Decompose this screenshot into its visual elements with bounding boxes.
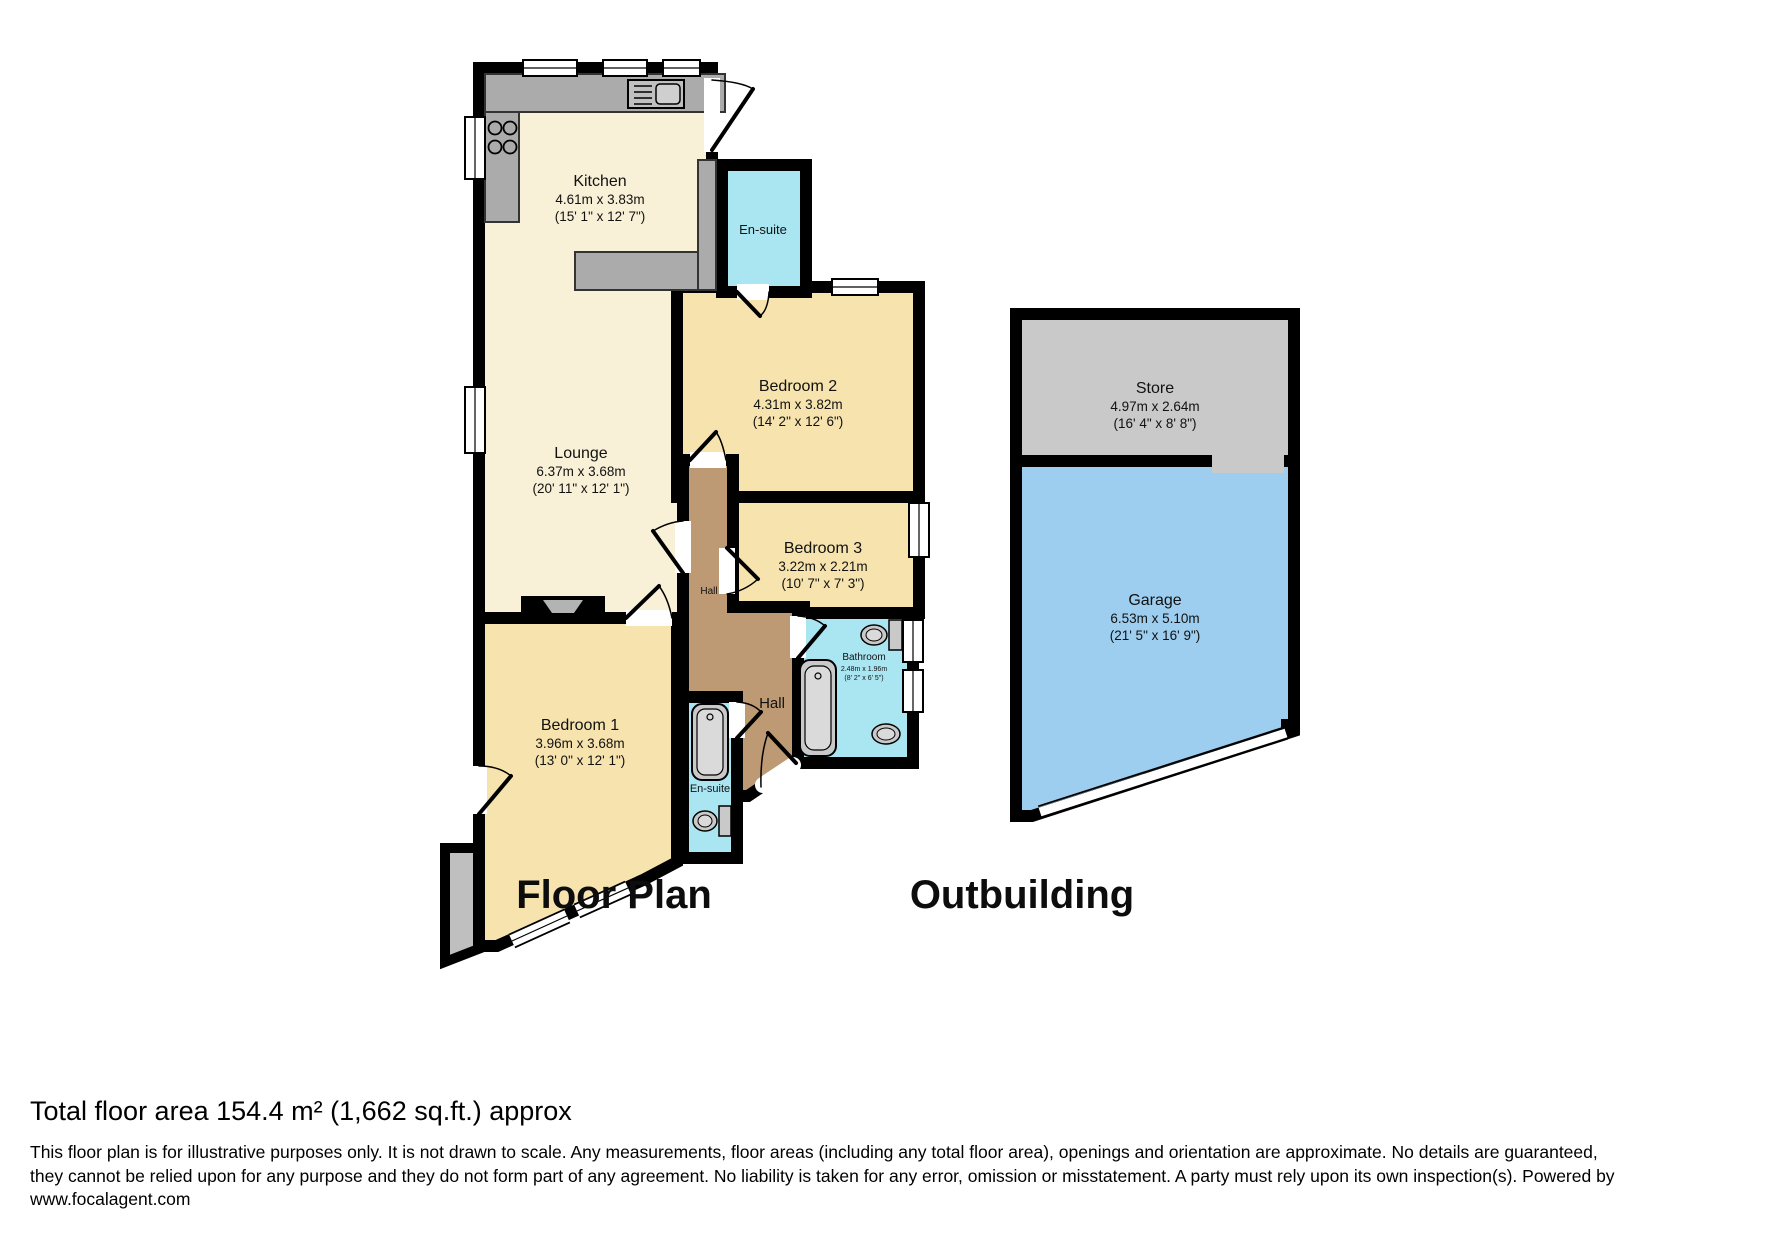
bathroom-metric: 2.48m x 1.96m xyxy=(841,666,887,673)
disclaimer: This floor plan is for illustrative purp… xyxy=(30,1141,1760,1212)
bedroom2-metric: 4.31m x 3.82m xyxy=(753,397,842,412)
ensuite-top-label: En-suite xyxy=(739,222,787,237)
kitchen-window-left xyxy=(465,117,485,179)
disclaimer-line-2: they cannot be relied upon for any purpo… xyxy=(30,1165,1760,1189)
disclaimer-line-1: This floor plan is for illustrative purp… xyxy=(30,1141,1760,1165)
bathroom-window-right-2 xyxy=(903,670,923,712)
hall-upper-label: Hall xyxy=(700,586,717,597)
bedroom1-metric: 3.96m x 3.68m xyxy=(535,736,624,751)
kitchen-imperial: (15' 1" x 12' 7") xyxy=(555,209,646,224)
bedroom2-window-top xyxy=(832,279,878,295)
house-floor-plan: Kitchen 4.61m x 3.83m (15' 1" x 12' 7") … xyxy=(445,60,929,962)
garage-label: Garage xyxy=(1128,592,1181,609)
ensuite-bottom-fixtures xyxy=(692,704,731,836)
lounge-imperial: (20' 11" x 12' 1") xyxy=(532,481,629,496)
bedroom3-window-right xyxy=(909,503,929,557)
floor-plan-title: Floor Plan xyxy=(516,873,712,917)
bedroom3-imperial: (10' 7" x 7' 3") xyxy=(781,576,864,591)
store-imperial: (16' 4" x 8' 8") xyxy=(1113,416,1196,431)
plan-canvas: Kitchen 4.61m x 3.83m (15' 1" x 12' 7") … xyxy=(0,0,1771,1239)
counter-top xyxy=(485,74,725,112)
garage-imperial: (21' 5" x 16' 9") xyxy=(1110,628,1201,643)
sink-icon xyxy=(628,80,684,108)
lounge-window-left xyxy=(465,387,485,453)
total-floor-area: Total floor area 154.4 m² (1,662 sq.ft.)… xyxy=(30,1096,572,1127)
bedroom2-imperial: (14' 2" x 12' 6") xyxy=(753,414,844,429)
bathroom-imperial: (8' 2" x 6' 5") xyxy=(844,675,883,682)
bedroom2-label: Bedroom 2 xyxy=(759,378,837,395)
store-garage-opening xyxy=(1212,449,1284,473)
fireplace xyxy=(521,596,605,622)
bathroom-label: Bathroom xyxy=(842,652,885,663)
hall-lower-label: Hall xyxy=(759,695,785,712)
bedroom3-metric: 3.22m x 2.21m xyxy=(778,559,867,574)
kitchen-label: Kitchen xyxy=(573,173,626,190)
bedroom1-label: Bedroom 1 xyxy=(541,717,619,734)
disclaimer-line-3: www.focalagent.com xyxy=(30,1188,1760,1212)
bath-icon xyxy=(800,660,836,756)
bedroom3-label: Bedroom 3 xyxy=(784,540,862,557)
counter-peninsula xyxy=(575,252,700,290)
kitchen-window-top-3 xyxy=(663,60,700,76)
bedroom1-imperial: (13' 0" x 12' 1") xyxy=(535,753,626,768)
outbuilding-title: Outbuilding xyxy=(910,873,1134,917)
garage-metric: 6.53m x 5.10m xyxy=(1110,611,1199,626)
ensuite-bottom-label: En-suite xyxy=(690,783,730,795)
counter-divider xyxy=(698,160,716,290)
store-label: Store xyxy=(1136,380,1174,397)
lounge-metric: 6.37m x 3.68m xyxy=(536,464,625,479)
ensuite-bath-icon xyxy=(692,704,728,780)
basin-icon xyxy=(872,724,900,744)
bathroom-window-right-1 xyxy=(903,620,923,662)
outbuilding-plan: Store 4.97m x 2.64m (16' 4" x 8' 8") Gar… xyxy=(1016,314,1294,818)
floorplan-page: Kitchen 4.61m x 3.83m (15' 1" x 12' 7") … xyxy=(0,0,1771,1239)
front-door xyxy=(704,78,753,152)
lounge-label: Lounge xyxy=(554,445,607,462)
kitchen-metric: 4.61m x 3.83m xyxy=(555,192,644,207)
store-metric: 4.97m x 2.64m xyxy=(1110,399,1199,414)
kitchen-window-top-1 xyxy=(523,60,577,76)
kitchen-window-top-2 xyxy=(603,60,647,76)
